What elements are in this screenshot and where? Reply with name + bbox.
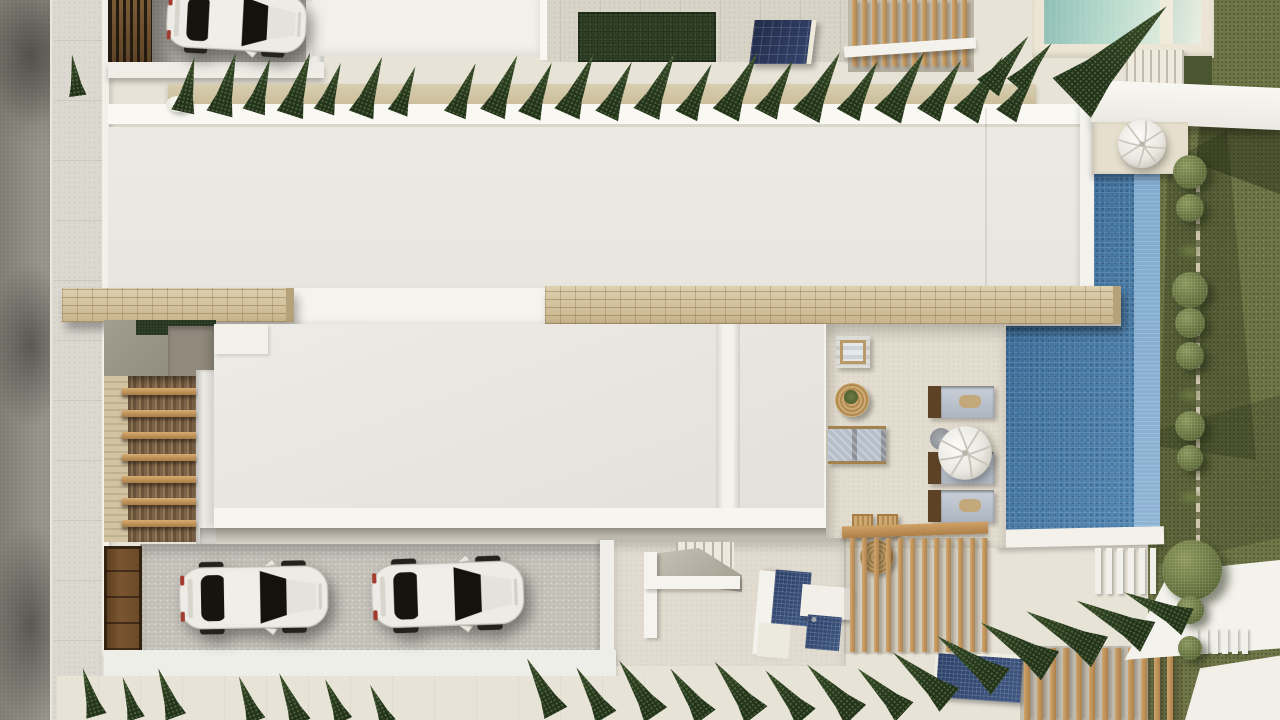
garage-interior xyxy=(108,0,152,70)
towel-armchair xyxy=(836,336,870,368)
artificial-turf-patch xyxy=(578,12,716,62)
umbrella-ledge xyxy=(1092,122,1188,174)
roof-vent xyxy=(166,96,190,112)
driveway xyxy=(140,544,614,656)
aerial-villa-render xyxy=(0,0,1280,720)
lower-roof-step xyxy=(214,324,268,354)
pool-shallow-pane xyxy=(1173,0,1201,44)
deck-pergola-shade xyxy=(844,538,988,654)
front-fountain-mosaic xyxy=(932,649,1023,703)
stone-ledge-left xyxy=(62,288,294,322)
large-garden-bush xyxy=(1162,540,1222,600)
lounge-chair-pair xyxy=(828,426,886,464)
wicker-coffee-table xyxy=(835,383,869,417)
upper-roof-small xyxy=(312,0,544,56)
stair-wall-horizontal xyxy=(644,576,740,589)
lower-roof-seam xyxy=(716,324,740,528)
stone-ledge-right xyxy=(545,286,1121,324)
roof-pergola xyxy=(848,0,974,72)
roof-seam xyxy=(985,108,987,296)
solar-panel xyxy=(749,20,816,64)
garage-floor xyxy=(152,0,310,70)
pool-rim xyxy=(998,526,1164,547)
pool-divider xyxy=(1160,0,1173,44)
pergola-side-wall xyxy=(196,370,216,544)
front-yard-paving xyxy=(56,676,656,720)
sidewalk xyxy=(52,0,108,720)
neighbor-pool-water xyxy=(1044,0,1160,44)
pool-shallow-ledge xyxy=(1134,128,1160,538)
stone-column xyxy=(104,376,128,542)
stone-feature-wall xyxy=(128,376,198,542)
wooden-entry-gate xyxy=(104,546,142,658)
main-roof xyxy=(108,104,1094,296)
spa-water-feature xyxy=(752,564,854,664)
stair-wall-vertical xyxy=(644,552,657,638)
front-boundary-wall xyxy=(104,650,616,676)
lower-roof-bottom-parapet xyxy=(214,508,834,528)
lower-roof xyxy=(214,324,834,528)
spa-wall-lower xyxy=(756,622,791,659)
umbrella-base xyxy=(930,428,952,450)
garage-parapet xyxy=(108,62,324,78)
dividing-wall xyxy=(540,0,547,60)
